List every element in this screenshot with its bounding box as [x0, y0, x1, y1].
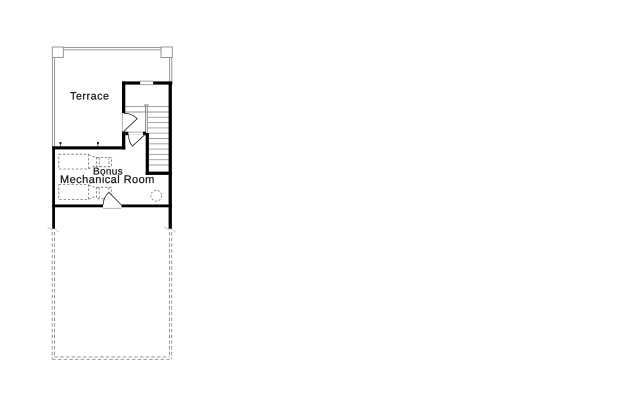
svg-text:Mechanical Room: Mechanical Room	[60, 174, 155, 186]
svg-text:Terrace: Terrace	[70, 90, 110, 102]
